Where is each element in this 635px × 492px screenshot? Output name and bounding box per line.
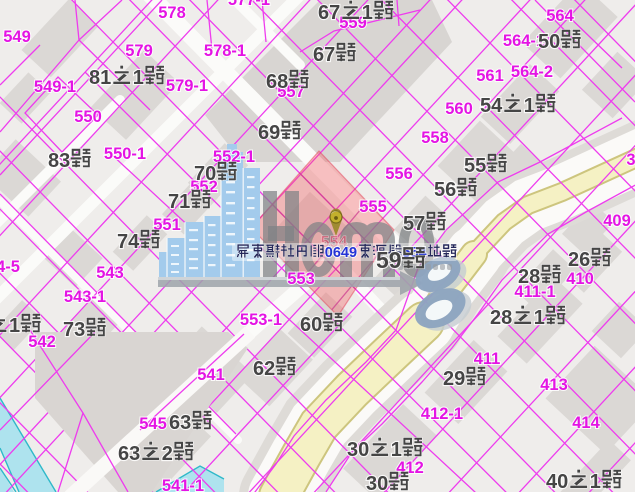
svg-text:50: 50 (538, 31, 560, 53)
svg-text:73: 73 (63, 319, 85, 341)
svg-text:543: 543 (96, 264, 124, 282)
svg-text:1: 1 (133, 67, 144, 89)
svg-text:26: 26 (568, 249, 590, 271)
svg-text:69: 69 (258, 122, 280, 144)
svg-text:57: 57 (403, 213, 425, 235)
svg-text:553-1: 553-1 (240, 311, 282, 329)
svg-text:545: 545 (139, 415, 167, 433)
svg-text:67: 67 (318, 2, 340, 24)
svg-text:81: 81 (89, 67, 111, 89)
svg-text:577-1: 577-1 (228, 0, 270, 9)
svg-text:558: 558 (421, 129, 449, 147)
svg-text:1: 1 (524, 95, 535, 117)
svg-text:2: 2 (162, 443, 173, 465)
svg-text:411: 411 (474, 350, 501, 368)
svg-text:578: 578 (158, 4, 186, 22)
svg-text:550: 550 (74, 108, 102, 126)
svg-text:1: 1 (590, 471, 601, 492)
svg-text:29: 29 (443, 368, 465, 390)
svg-text:564: 564 (546, 7, 574, 25)
svg-text:74: 74 (117, 231, 140, 253)
svg-text:63: 63 (118, 443, 140, 465)
svg-text:556: 556 (385, 165, 413, 183)
svg-text:560: 560 (445, 100, 473, 118)
svg-text:28: 28 (518, 266, 540, 288)
svg-text:579: 579 (125, 42, 153, 60)
svg-text:1: 1 (391, 439, 402, 461)
svg-text:412: 412 (396, 459, 424, 477)
svg-text:30: 30 (366, 473, 388, 492)
svg-text:1: 1 (362, 2, 373, 24)
svg-text:561: 561 (476, 67, 504, 85)
svg-text:4-5: 4-5 (0, 258, 20, 276)
svg-text:549-1: 549-1 (34, 78, 76, 96)
svg-text:579-1: 579-1 (166, 77, 208, 95)
svg-text:71: 71 (168, 191, 190, 213)
svg-text:56: 56 (434, 179, 456, 201)
svg-text:1: 1 (9, 315, 20, 337)
svg-text:564-2: 564-2 (511, 63, 553, 81)
svg-text:0649: 0649 (325, 245, 357, 261)
svg-text:413: 413 (540, 376, 568, 394)
svg-text:68: 68 (266, 71, 288, 93)
svg-text:553: 553 (287, 270, 315, 288)
svg-text:542: 542 (28, 333, 56, 351)
svg-text:55: 55 (464, 155, 486, 177)
svg-text:409: 409 (603, 212, 631, 230)
svg-text:83: 83 (48, 150, 70, 172)
svg-text:550-1: 550-1 (104, 145, 146, 163)
svg-text:3: 3 (626, 151, 635, 169)
svg-text:60: 60 (300, 314, 322, 336)
svg-text:62: 62 (253, 358, 275, 380)
svg-text:543-1: 543-1 (64, 288, 106, 306)
svg-text:410: 410 (566, 270, 594, 288)
svg-text:40: 40 (546, 471, 568, 492)
svg-text:28: 28 (490, 307, 512, 329)
svg-text:541-1: 541-1 (162, 477, 204, 492)
svg-text:67: 67 (313, 44, 335, 66)
svg-text:414: 414 (572, 414, 600, 432)
svg-text:30: 30 (347, 439, 369, 461)
svg-text:549: 549 (3, 28, 31, 46)
svg-text:59: 59 (376, 247, 402, 273)
svg-text:412-1: 412-1 (421, 405, 463, 423)
svg-text:1: 1 (534, 307, 545, 329)
svg-text:70: 70 (194, 163, 216, 185)
svg-text:54: 54 (480, 95, 503, 117)
svg-text:541: 541 (197, 366, 225, 384)
svg-text:555: 555 (359, 198, 387, 216)
svg-text:578-1: 578-1 (204, 42, 246, 60)
svg-text:63: 63 (169, 412, 191, 434)
